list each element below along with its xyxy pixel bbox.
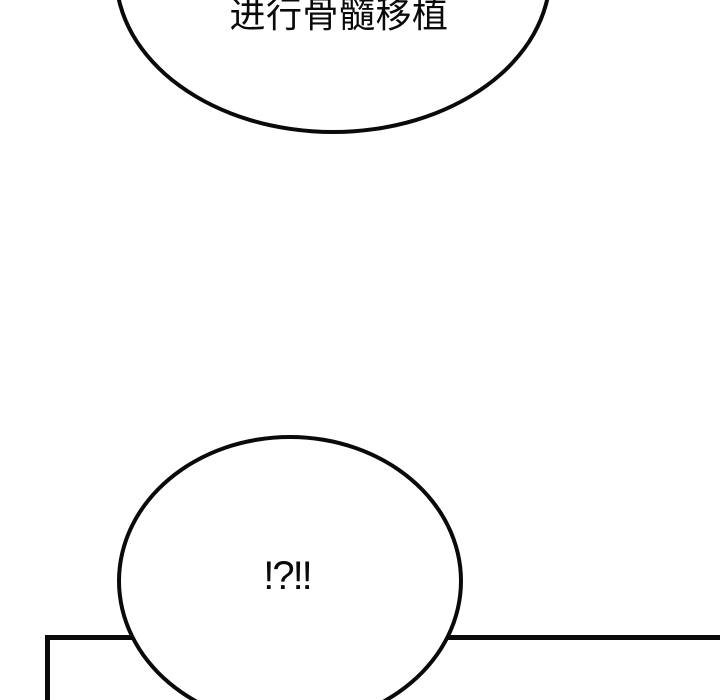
comic-page: 进行骨髓移植 !?!! [0, 0, 720, 700]
panel-border-vertical [45, 635, 50, 700]
speech-bubble-bottom-text: !?!! [263, 556, 311, 596]
speech-bubble-top-text: 进行骨髓移植 [229, 0, 448, 35]
